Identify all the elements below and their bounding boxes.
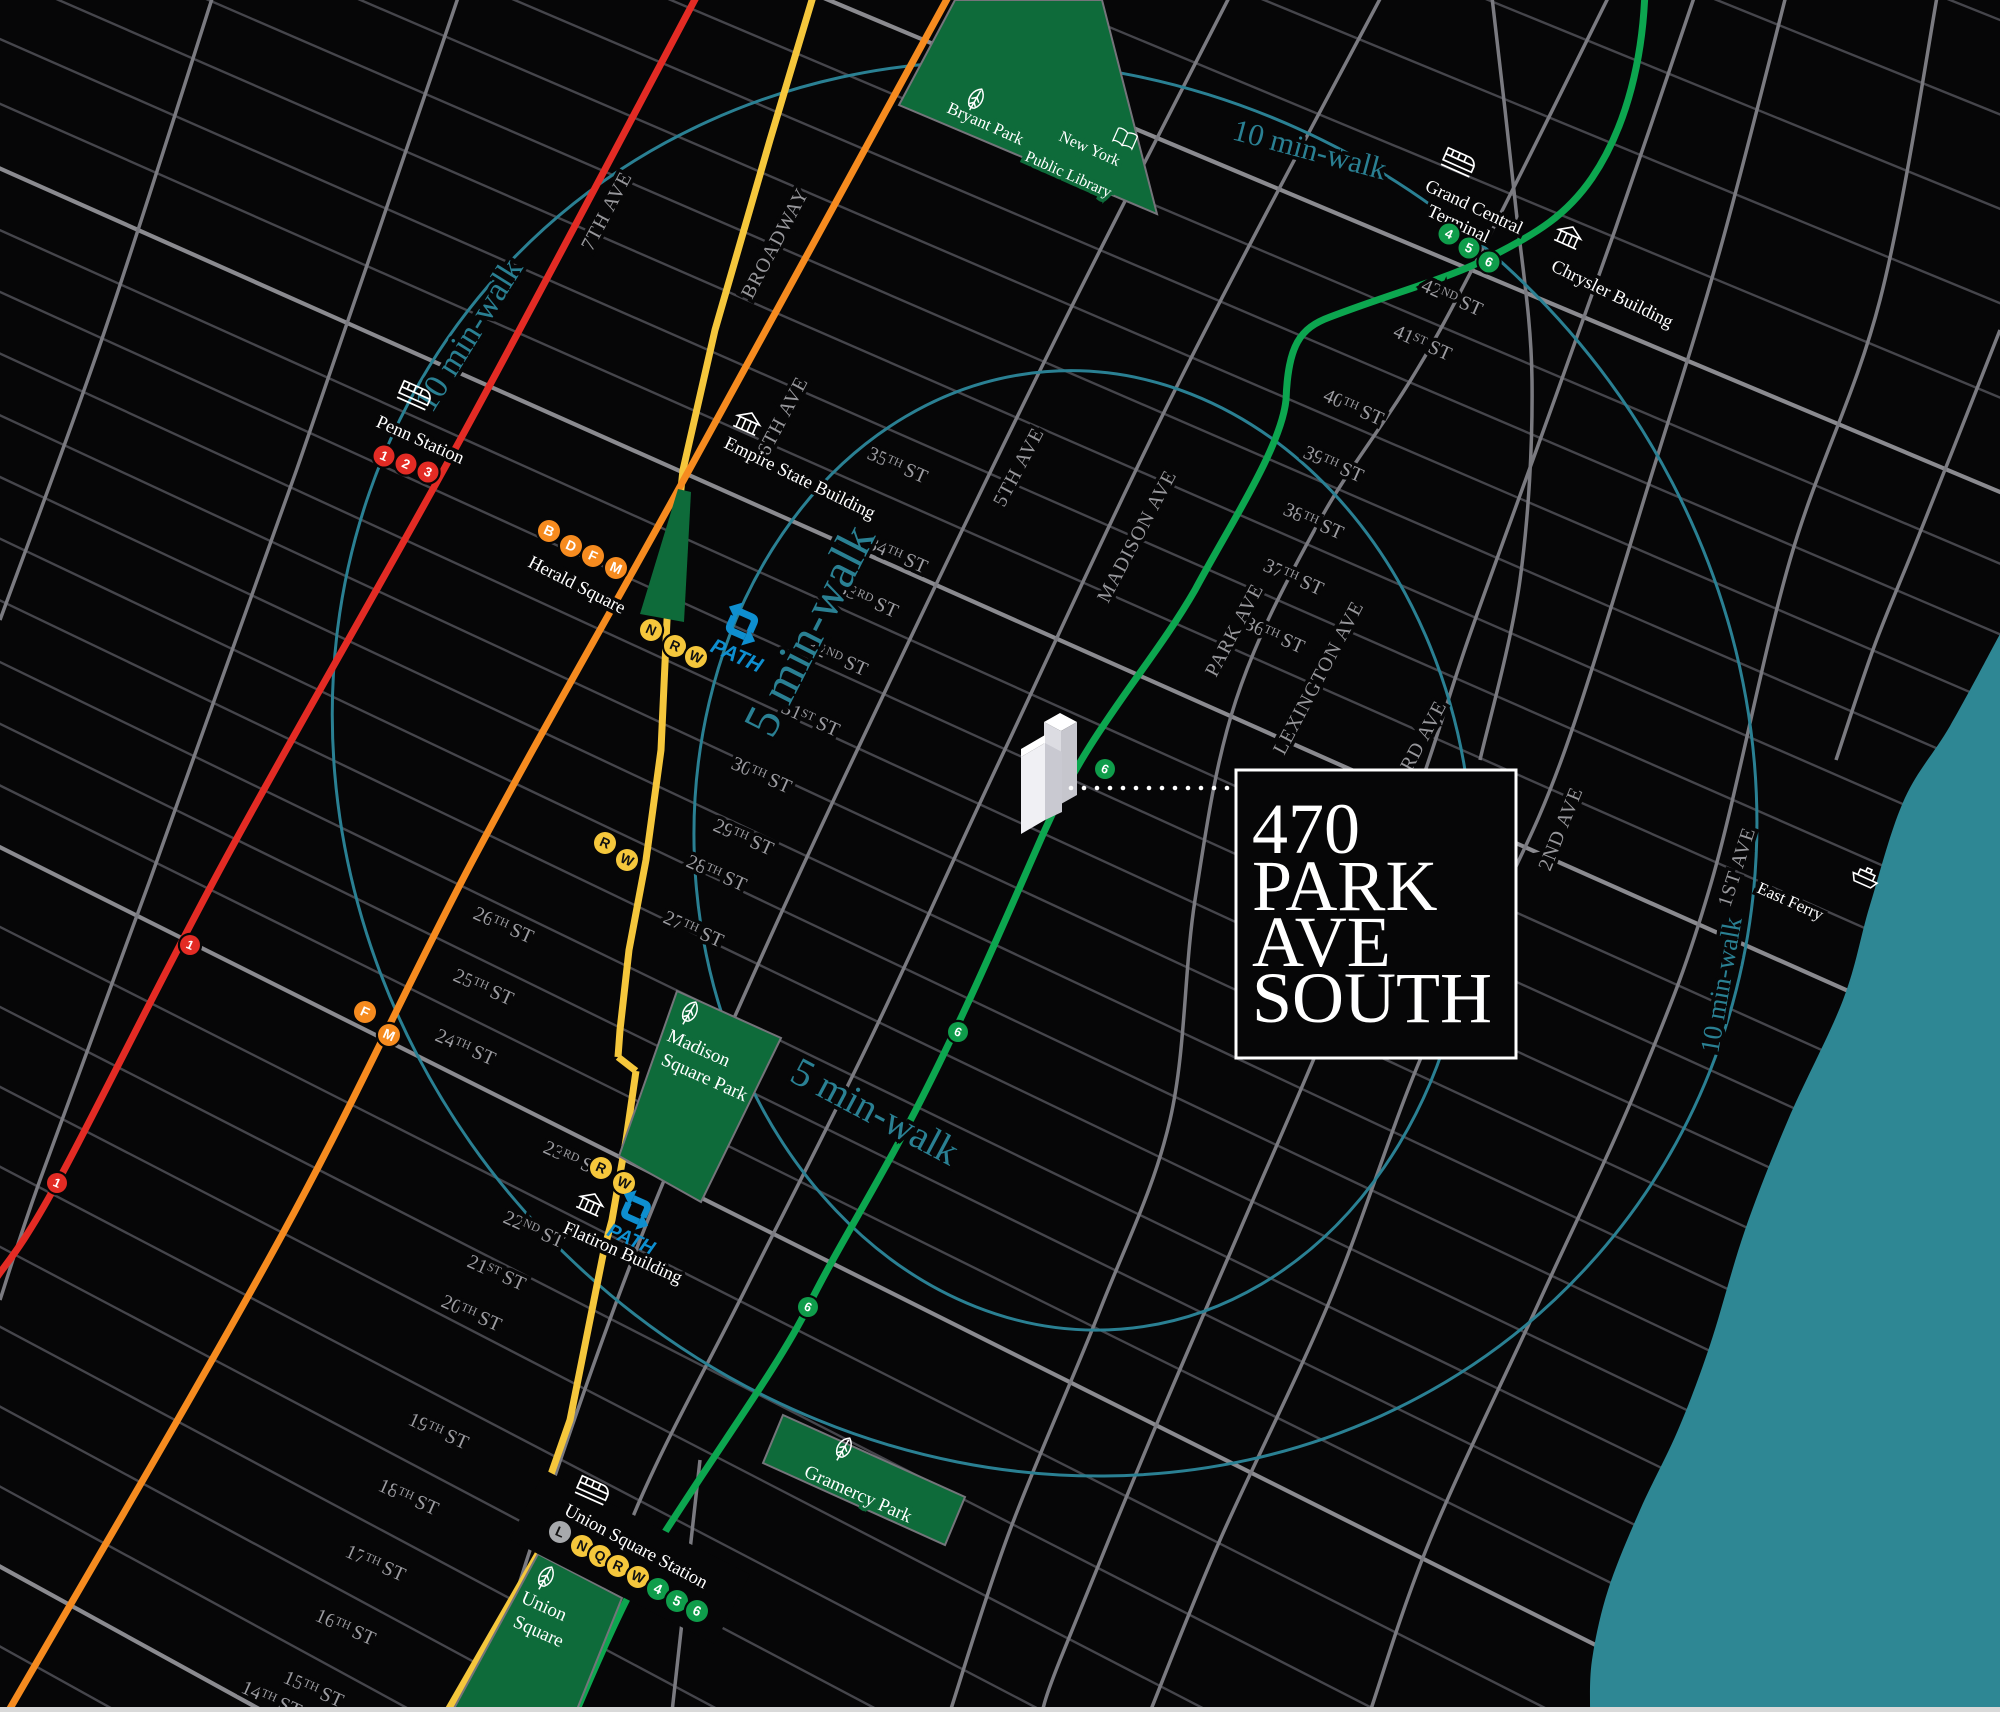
svg-text:SOUTH: SOUTH [1252,958,1492,1038]
